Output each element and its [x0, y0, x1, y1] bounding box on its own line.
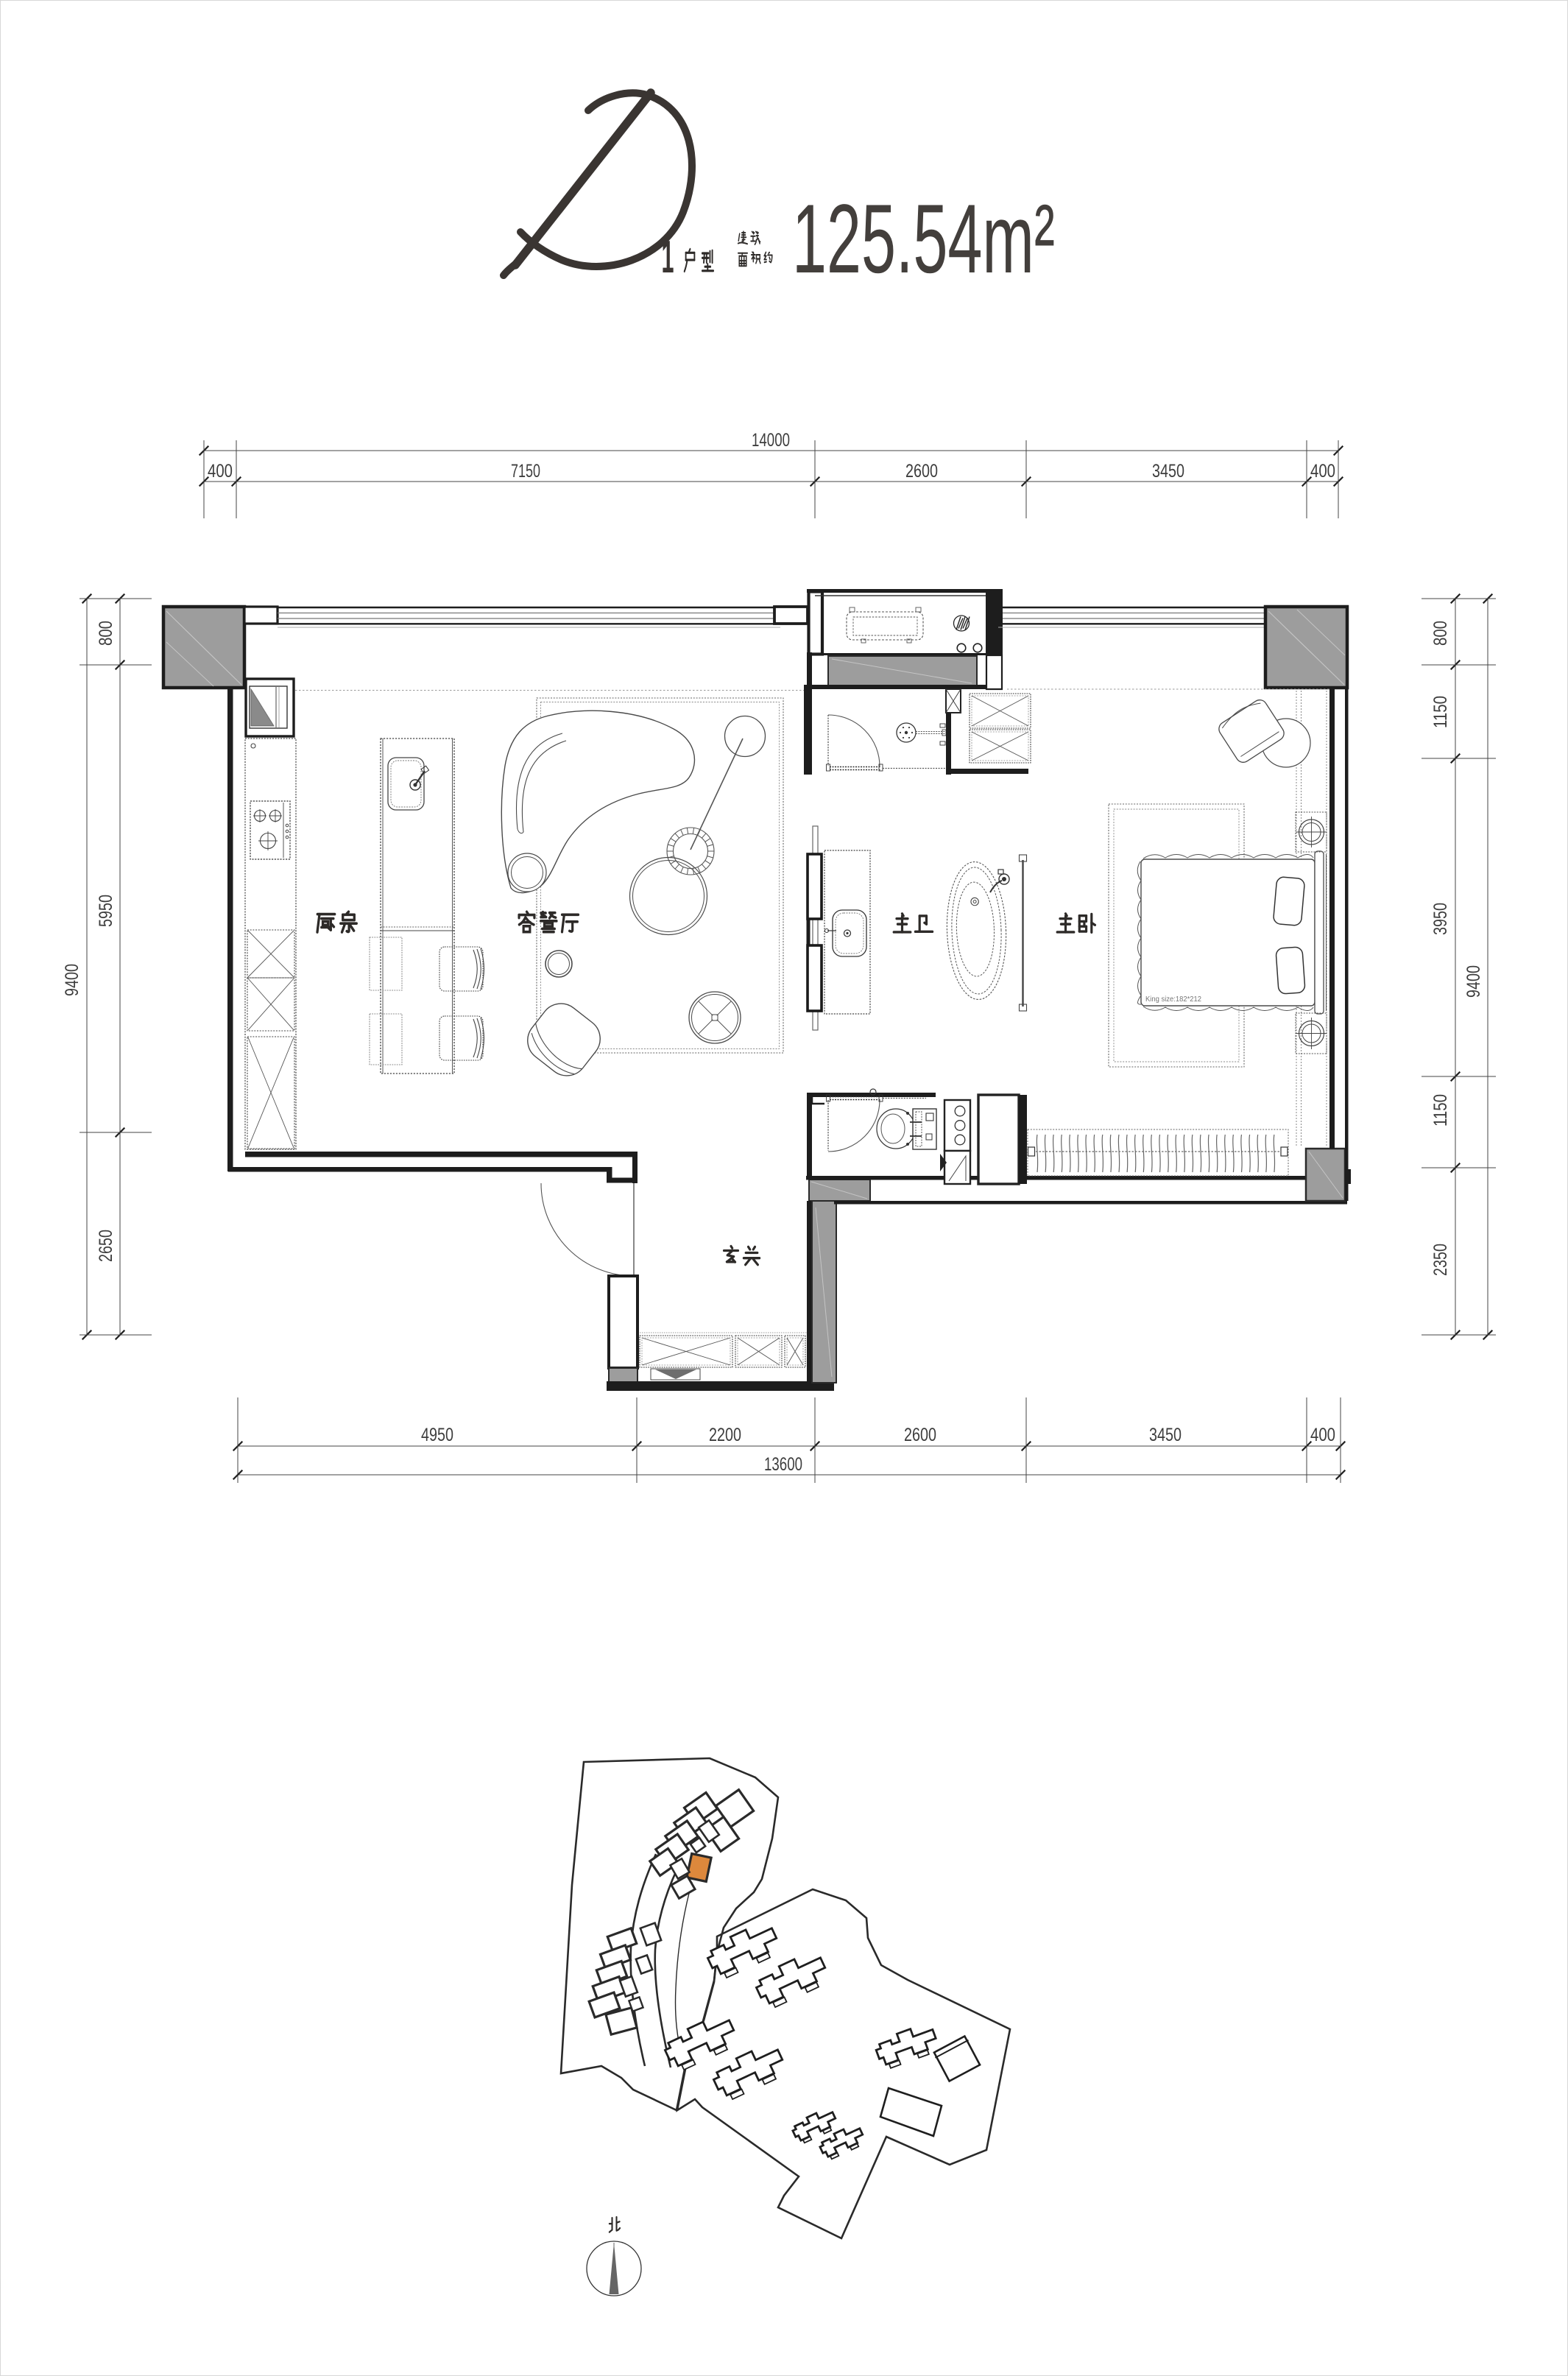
svg-text:2600: 2600: [904, 1425, 936, 1445]
svg-text:3950: 3950: [1430, 903, 1451, 935]
svg-text:400: 400: [1310, 461, 1335, 482]
svg-text:400: 400: [1310, 1425, 1335, 1445]
svg-text:800: 800: [96, 621, 116, 646]
svg-text:3450: 3450: [1149, 1425, 1182, 1445]
svg-text:1150: 1150: [1430, 696, 1451, 728]
svg-text:2350: 2350: [1430, 1244, 1451, 1276]
svg-text:800: 800: [1430, 621, 1451, 646]
svg-text:King size:182*212: King size:182*212: [1145, 995, 1201, 1004]
svg-text:9400: 9400: [1463, 965, 1484, 998]
svg-text:3450: 3450: [1152, 461, 1184, 482]
svg-text:400: 400: [208, 461, 233, 482]
svg-text:13600: 13600: [764, 1454, 802, 1475]
svg-text:14000: 14000: [752, 430, 790, 451]
svg-text:4950: 4950: [421, 1425, 453, 1445]
svg-text:2650: 2650: [96, 1230, 116, 1262]
svg-text:5950: 5950: [96, 895, 116, 927]
svg-text:2200: 2200: [709, 1425, 741, 1445]
svg-text:125.54m²: 125.54m²: [792, 183, 1055, 293]
svg-text:1: 1: [662, 232, 674, 283]
svg-text:9400: 9400: [62, 964, 82, 996]
svg-text:7150: 7150: [511, 461, 540, 482]
svg-text:2600: 2600: [905, 461, 938, 482]
svg-text:1150: 1150: [1430, 1094, 1451, 1127]
